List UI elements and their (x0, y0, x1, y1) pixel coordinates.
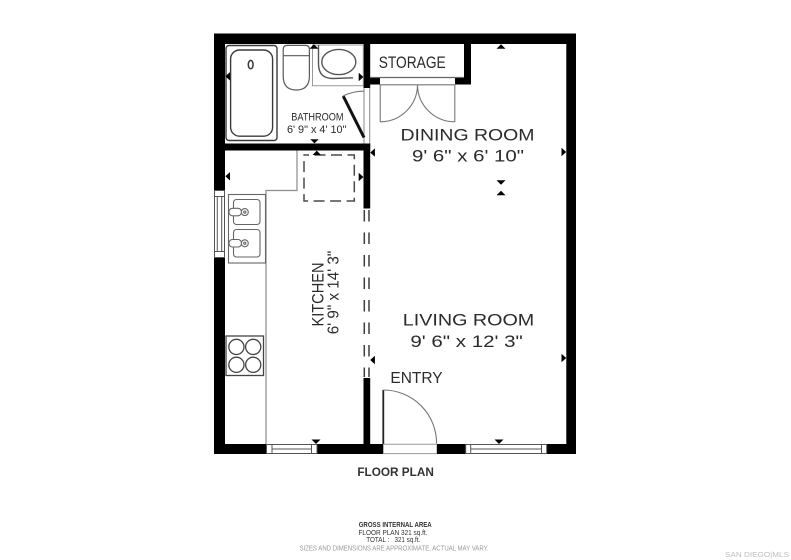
svg-text:ENTRY: ENTRY (390, 370, 443, 387)
svg-text:BATHROOM: BATHROOM (291, 112, 343, 124)
svg-text:LIVING ROOM: LIVING ROOM (403, 310, 535, 329)
svg-text:DINING ROOM: DINING ROOM (401, 125, 535, 144)
svg-text:STORAGE: STORAGE (379, 54, 446, 72)
svg-text:SIZES AND DIMENSIONS ARE APPRO: SIZES AND DIMENSIONS ARE APPROXIMATE, AC… (300, 543, 489, 552)
svg-text:6' 9" x 14' 3": 6' 9" x 14' 3" (326, 251, 343, 335)
svg-text:FLOOR PLAN: FLOOR PLAN (357, 467, 434, 479)
svg-text:9' 6" x 6' 10": 9' 6" x 6' 10" (412, 147, 524, 165)
svg-text:9' 6" x 12' 3": 9' 6" x 12' 3" (410, 333, 523, 351)
svg-text:SAN DIEGO|MLS: SAN DIEGO|MLS (725, 550, 789, 559)
svg-text:6' 9" x 4' 10": 6' 9" x 4' 10" (287, 124, 347, 136)
